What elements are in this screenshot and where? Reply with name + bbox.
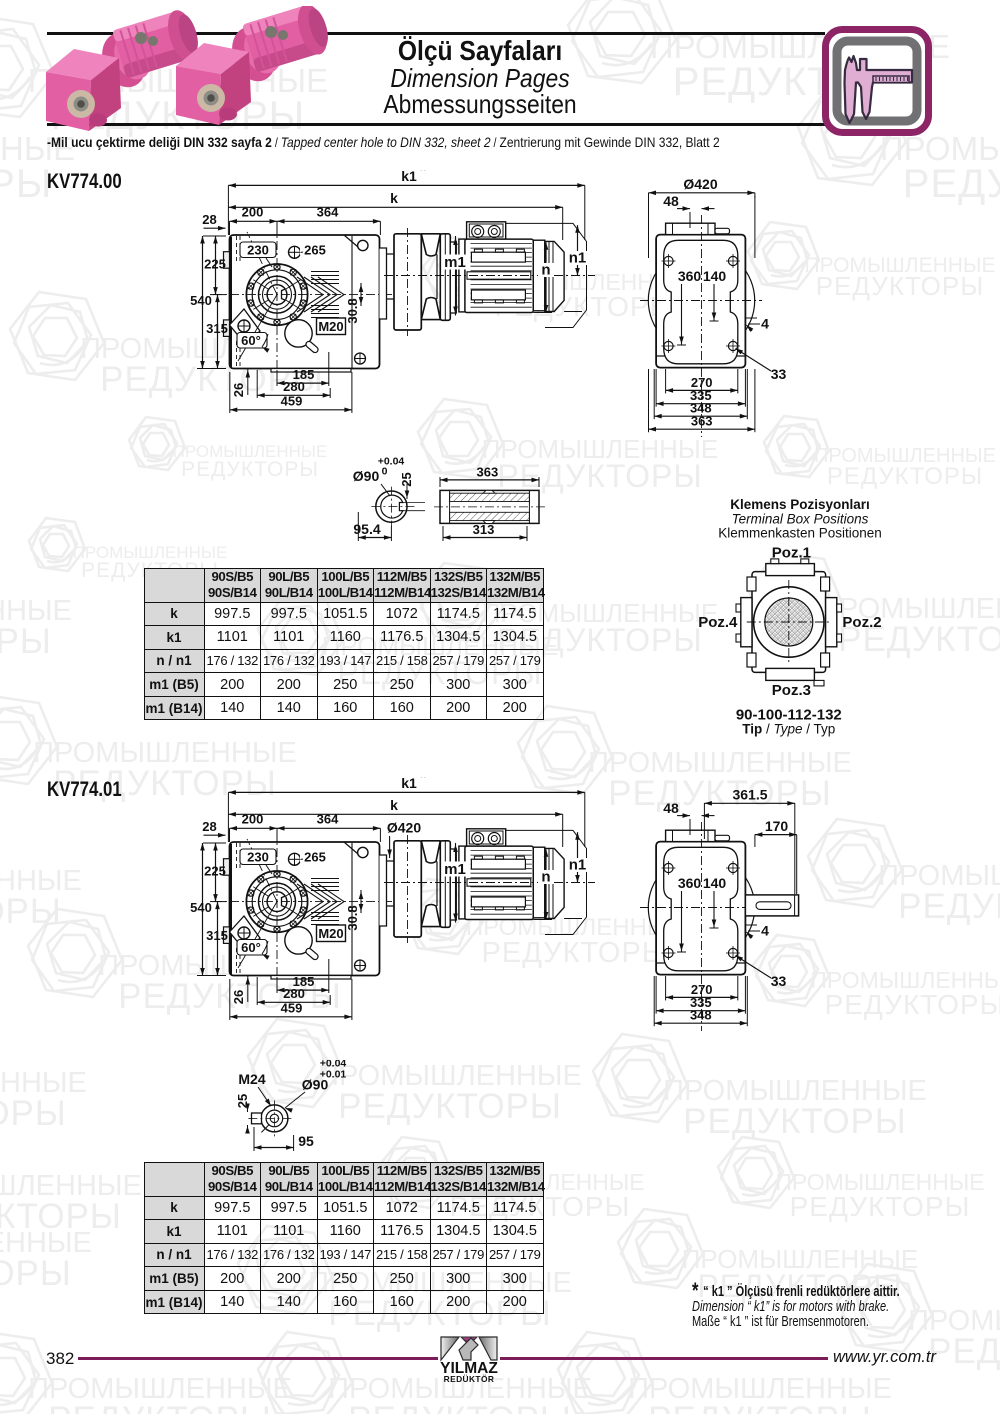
svg-text:30.8: 30.8 (345, 905, 360, 930)
svg-text:280: 280 (283, 986, 305, 1001)
svg-text:33: 33 (771, 366, 787, 382)
svg-text:540: 540 (190, 900, 212, 915)
svg-text:REDÜKTÖR: REDÜKTÖR (444, 1374, 495, 1384)
svg-text:348: 348 (690, 1008, 712, 1023)
svg-text:363: 363 (477, 464, 499, 479)
svg-text:60°: 60° (241, 940, 261, 955)
svg-text:315: 315 (206, 321, 228, 336)
svg-text:Poz.4: Poz.4 (698, 614, 738, 631)
svg-text:225: 225 (204, 257, 226, 272)
svg-text:k: k (390, 797, 398, 813)
svg-text:Terminal Box Positions: Terminal Box Positions (732, 512, 869, 527)
svg-text:360: 360 (678, 268, 702, 284)
svg-text:*: * (418, 777, 428, 791)
svg-text:n: n (541, 262, 550, 279)
svg-text:k1: k1 (401, 170, 417, 184)
svg-text:459: 459 (281, 1001, 303, 1016)
svg-text:m1: m1 (444, 861, 466, 878)
svg-text:26: 26 (231, 990, 246, 1004)
svg-text:Poz.2: Poz.2 (842, 614, 881, 631)
svg-text:Ø420: Ø420 (387, 819, 421, 835)
svg-text:РЕДУКТОРЫ: РЕДУКТОРЫ (348, 1400, 572, 1414)
svg-text:n1: n1 (569, 857, 587, 874)
svg-text:РЕДУКТОРЫ: РЕДУКТОРЫ (648, 1400, 872, 1414)
svg-text:459: 459 (281, 394, 303, 409)
svg-text:Poz.1: Poz.1 (772, 545, 811, 562)
svg-text:265: 265 (304, 243, 326, 258)
svg-text:M20: M20 (318, 926, 343, 941)
svg-text:Ø420: Ø420 (683, 176, 717, 192)
svg-text:4: 4 (761, 316, 769, 332)
svg-text:364: 364 (317, 812, 339, 827)
svg-text:60°: 60° (241, 333, 261, 348)
svg-text:140: 140 (703, 875, 727, 891)
svg-text:k1: k1 (401, 777, 417, 791)
svg-text:170: 170 (765, 818, 789, 834)
svg-text:225: 225 (204, 864, 226, 879)
svg-text:95.4: 95.4 (353, 521, 380, 537)
svg-text:РЕДУКТОРЫ: РЕДУКТОРЫ (48, 1400, 272, 1414)
svg-text:361.5: 361.5 (732, 787, 767, 803)
svg-text:Klemmenkasten Positionen: Klemmenkasten Positionen (718, 526, 882, 541)
svg-text:Poz.3: Poz.3 (772, 682, 811, 699)
svg-text:M20: M20 (318, 319, 343, 334)
svg-text:540: 540 (190, 293, 212, 308)
svg-text:n: n (541, 869, 550, 886)
svg-text:33: 33 (771, 973, 787, 989)
svg-text:230: 230 (247, 243, 269, 258)
svg-text:200: 200 (242, 205, 264, 220)
svg-text:230: 230 (247, 850, 269, 865)
svg-text:РЕДУКТОРЫ: РЕДУКТОРЫ (928, 1332, 1000, 1371)
svg-text:+0.01: +0.01 (320, 1069, 347, 1081)
svg-text:28: 28 (202, 819, 216, 834)
svg-text:4: 4 (761, 923, 769, 939)
svg-text:95: 95 (298, 1133, 314, 1149)
svg-text:200: 200 (242, 812, 264, 827)
svg-text:140: 140 (703, 268, 727, 284)
svg-text:Ø90: Ø90 (353, 468, 380, 484)
svg-text:0: 0 (382, 466, 388, 478)
svg-text:360: 360 (678, 875, 702, 891)
svg-text:313: 313 (473, 522, 495, 537)
svg-text:*: * (418, 170, 428, 184)
svg-text:48: 48 (663, 800, 679, 816)
svg-text:26: 26 (231, 383, 246, 397)
svg-text:364: 364 (317, 205, 339, 220)
svg-text:30.8: 30.8 (345, 298, 360, 323)
svg-text:280: 280 (283, 379, 305, 394)
svg-text:Tip / Type / Typ: Tip / Type / Typ (742, 722, 835, 737)
svg-text:РЕДУКТОРЫ: РЕДУКТОРЫ (0, 1254, 72, 1293)
svg-text:n1: n1 (569, 250, 587, 267)
svg-text:265: 265 (304, 850, 326, 865)
svg-text:Klemens Pozisyonları: Klemens Pozisyonları (730, 497, 870, 512)
svg-text:48: 48 (663, 193, 679, 209)
svg-text:M24: M24 (238, 1071, 265, 1087)
svg-text:m1: m1 (444, 254, 466, 271)
svg-text:363: 363 (691, 414, 713, 429)
svg-text:315: 315 (206, 928, 228, 943)
svg-text:28: 28 (202, 212, 216, 227)
svg-text:k: k (390, 190, 398, 206)
